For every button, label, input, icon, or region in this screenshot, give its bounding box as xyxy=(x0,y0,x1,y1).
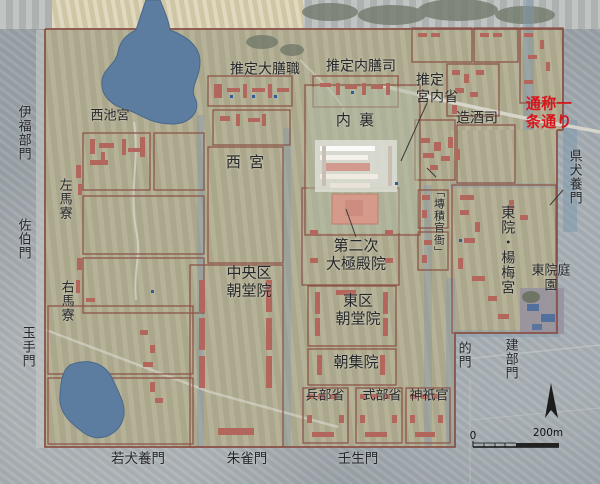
label-ichijo-dori-note: 通称一条通り xyxy=(524,95,575,130)
label-tamate-mon: 玉手門 xyxy=(19,326,34,368)
label-senseki-kanga: 「塼積官衙」 xyxy=(432,186,445,258)
scale-bar xyxy=(473,441,559,447)
label-higashiku-chodoin: 東区 朝堂院 xyxy=(335,292,380,327)
label-nishiike-miya: 西池宮 xyxy=(90,108,129,123)
label-chuoku-chodoin: 中央区 朝堂院 xyxy=(226,264,271,299)
label-hyobusho: 兵部省 xyxy=(305,388,344,403)
scale-length-label: 200m xyxy=(533,427,563,439)
label-zoshushi: 造酒司 xyxy=(456,111,498,128)
heijo-palace-map: 推定大膳職 推定内膳司 推定 宮内省 造酒司 通称一条通り 内裏 西宮 西池宮 … xyxy=(0,0,600,484)
label-mato-mon: 的門 xyxy=(455,341,470,369)
label-agatainukai-mon: 県犬養門 xyxy=(566,149,581,205)
label-toin-yobaigu: 東院・楊梅宮 xyxy=(499,205,516,295)
label-choshuin: 朝集院 xyxy=(333,354,378,372)
southwest-pond xyxy=(60,362,124,438)
ponds xyxy=(60,0,200,438)
label-wakainukai-mon: 若犬養門 xyxy=(111,452,165,468)
label-sama-ryo: 左馬寮 xyxy=(56,178,71,220)
label-uma-ryo: 右馬寮 xyxy=(58,280,73,322)
daigokuden-base xyxy=(332,194,378,224)
label-dairi: 内裏 xyxy=(328,112,383,130)
mizukami-pond xyxy=(102,0,200,124)
label-suitei-naizenshi: 推定内膳司 xyxy=(326,59,396,76)
label-saeki-mon: 佐伯門 xyxy=(15,218,30,260)
label-suitei-kunaisho: 推定 宮内省 xyxy=(416,72,458,105)
label-suzaku-mon: 朱雀門 xyxy=(227,452,268,468)
label-mibu-mon: 壬生門 xyxy=(338,452,379,468)
scale-zero-label: 0 xyxy=(470,430,477,442)
label-ifukube-mon: 伊福部門 xyxy=(15,105,30,161)
label-shikibusho: 式部省 xyxy=(362,388,401,403)
label-jingikan: 神祇官 xyxy=(409,388,448,403)
label-suitei-daizenshiki: 推定大膳職 xyxy=(230,62,300,79)
label-toin-teien: 東院庭園 xyxy=(527,264,576,295)
label-takebe-mon: 建部門 xyxy=(502,338,517,380)
label-nishi-miya: 西宮 xyxy=(218,154,273,172)
label-dainiji-daigokudenin: 第二次 大極殿院 xyxy=(326,237,386,272)
